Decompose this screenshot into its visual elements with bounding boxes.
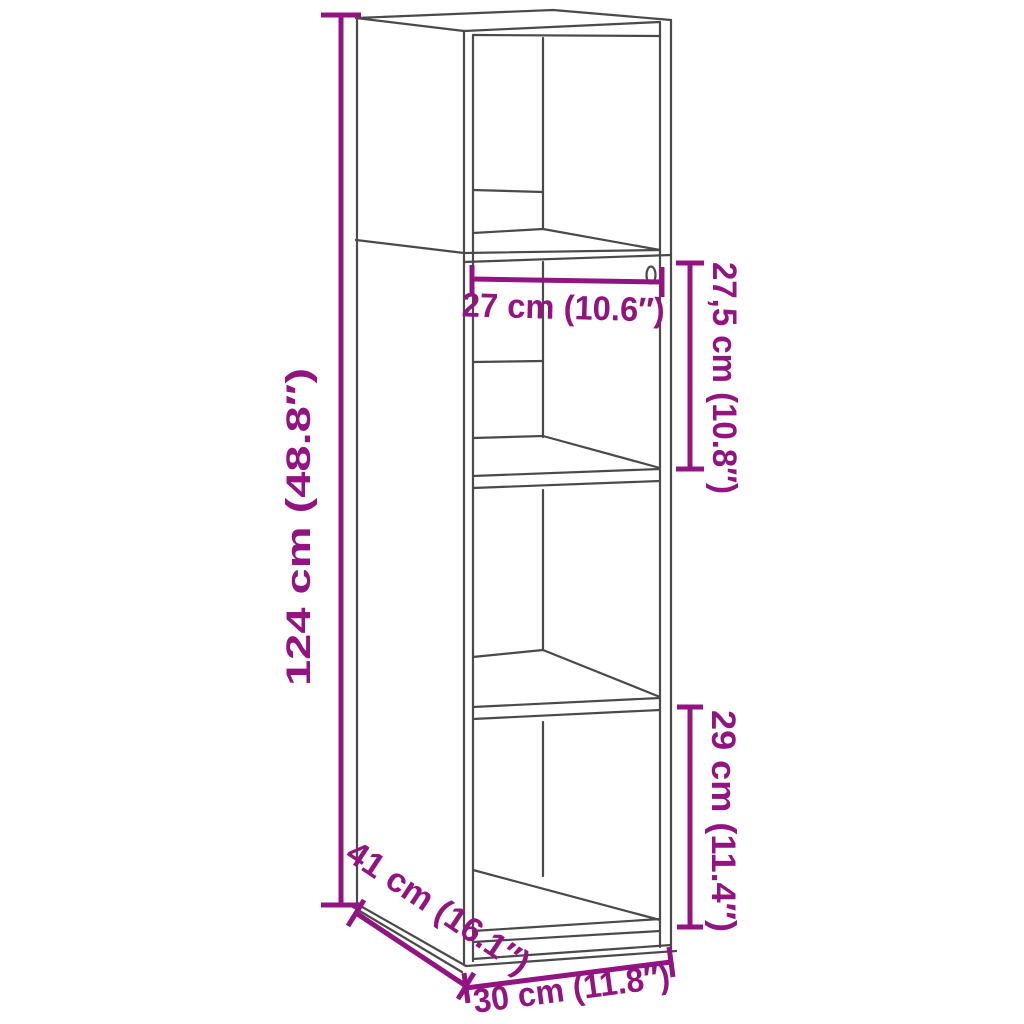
inner-width-label: 27 cm (10.6″) bbox=[461, 286, 665, 329]
top-inner-edge bbox=[473, 35, 660, 36]
lower-compartment-height-label: 29 cm (11.4″) bbox=[704, 710, 742, 932]
dim-line bbox=[472, 279, 662, 282]
dimension-diagram-svg: 124 cm (48.8″) 27 cm (10.6″) 27,5 cm (10… bbox=[0, 0, 1024, 1024]
back-panel-line bbox=[473, 361, 543, 362]
product-dimension-diagram: 124 cm (48.8″) 27 cm (10.6″) 27,5 cm (10… bbox=[0, 0, 1024, 1024]
background bbox=[0, 0, 1024, 1024]
upper-compartment-height-label: 27,5 cm (10.8″) bbox=[705, 262, 743, 494]
overall-height-label: 124 cm (48.8″) bbox=[280, 368, 318, 686]
